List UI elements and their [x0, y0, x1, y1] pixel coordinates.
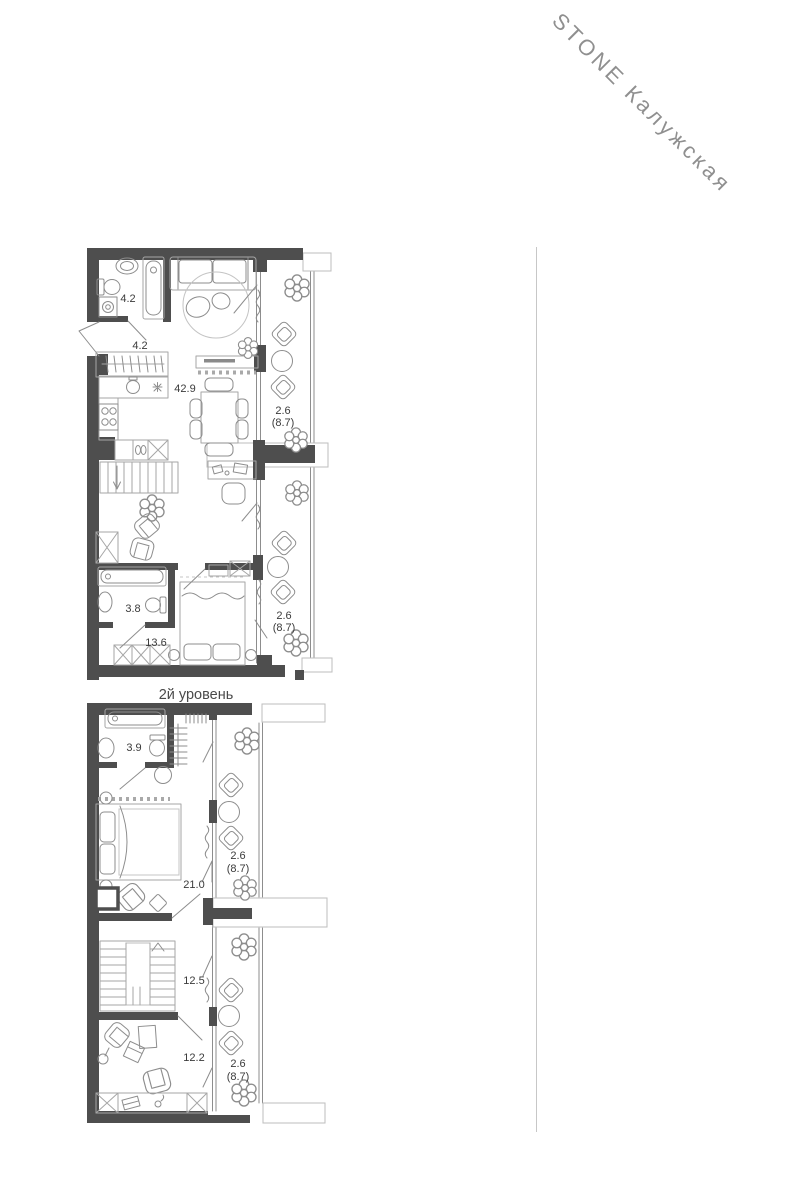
sink-icon	[98, 592, 112, 612]
wardrobe-hangers-icon	[170, 714, 206, 766]
balcony-door-swing	[203, 742, 213, 762]
balcony-chair-icon	[218, 825, 245, 852]
floor-plan-page: STONE Калужская	[0, 0, 791, 1200]
desk-chair-icon	[222, 483, 245, 504]
plant-icon	[285, 275, 309, 301]
balcony-chair-icon	[218, 1030, 245, 1057]
toilet-icon	[150, 735, 166, 756]
area-label-bathroom: 3.9	[126, 742, 141, 754]
easel-chair-icon	[102, 1020, 131, 1050]
lamp-base-icon	[98, 1054, 108, 1064]
balcony-top-slab	[303, 253, 331, 271]
walls-level-2	[87, 703, 252, 1123]
balcony-chair-icon	[270, 579, 297, 606]
toilet-icon	[97, 279, 120, 295]
balcony-table-icon	[272, 351, 293, 372]
sink-icon	[98, 738, 114, 758]
area-label-balcony1-total: (8.7)	[227, 863, 250, 875]
area-label-bedroom: 21.0	[183, 879, 204, 891]
door-swing	[172, 894, 200, 918]
rug-icon	[183, 272, 249, 338]
floor-plan-level-1: 4.2 4.2 42.9 2.6 (8.7) 3.8 13.6 2.6 (8.7…	[79, 248, 332, 680]
curtain-icon	[205, 978, 209, 1002]
curtain-icon	[205, 826, 209, 858]
bathtub-icon	[98, 567, 166, 586]
stairs-icon	[100, 462, 178, 493]
plant-icon	[232, 1080, 256, 1106]
plant-icon	[232, 934, 256, 960]
floor-plan-level-2: 3.9 2.6 (8.7) 21.0 12.5 12.2 2.6 (8.7)	[87, 703, 327, 1123]
bed-icon	[96, 792, 181, 892]
area-label-balcony1: 2.6	[275, 405, 290, 417]
plant-icon	[140, 495, 164, 521]
area-label-balcony2-total: (8.7)	[273, 622, 296, 634]
side-table-icon	[149, 894, 167, 912]
balcony-chair-icon	[271, 530, 298, 557]
area-label-study: 12.2	[183, 1052, 204, 1064]
balcony-top-slab	[262, 704, 325, 722]
plant-icon	[238, 338, 257, 359]
armchair-icon	[129, 536, 155, 561]
balcony-table-icon	[268, 557, 289, 578]
office-chair-icon	[142, 1067, 172, 1096]
balcony-table-icon	[219, 802, 240, 823]
area-label-balcony1-total: (8.7)	[272, 417, 295, 429]
balcony-chair-icon	[271, 321, 298, 348]
balcony-chair-icon	[218, 772, 245, 799]
bed-icon	[169, 582, 257, 665]
entry-door-swing	[79, 322, 99, 356]
area-label-balcony2: 2.6	[276, 610, 291, 622]
bathtub-icon	[105, 709, 165, 728]
closet-icon	[96, 532, 118, 563]
area-label-living: 42.9	[174, 383, 195, 395]
canvas-icon	[138, 1025, 156, 1048]
area-label-bathroom2: 3.8	[125, 603, 140, 615]
area-label-balcony2: 2.6	[230, 1058, 245, 1070]
bathtub-icon	[143, 257, 164, 319]
balcony-bottom-slab	[263, 1103, 325, 1123]
door-swing	[128, 321, 146, 340]
area-label-balcony2-total: (8.7)	[227, 1071, 250, 1083]
area-label-bathroom1: 4.2	[120, 293, 135, 305]
level-2-title: 2й уровень	[159, 687, 234, 703]
balcony-chair-icon	[270, 374, 297, 401]
desk-row-icon	[96, 1093, 207, 1113]
area-label-hall: 12.5	[183, 975, 204, 987]
door-swing	[120, 768, 145, 789]
ottoman-icon	[210, 291, 232, 311]
plan-canvas: 4.2 4.2 42.9 2.6 (8.7) 3.8 13.6 2.6 (8.7…	[0, 0, 791, 1200]
notebook-icon	[123, 1041, 144, 1062]
area-label-bedroom: 13.6	[145, 637, 166, 649]
balcony-bottom-slab	[302, 658, 332, 672]
plant-icon	[234, 876, 256, 900]
door-swing	[184, 569, 205, 589]
area-label-hall: 4.2	[132, 340, 147, 352]
area-label-balcony1: 2.6	[230, 850, 245, 862]
ottoman-icon	[183, 293, 212, 320]
washer-icon	[99, 297, 117, 317]
door-swing	[178, 1016, 202, 1040]
sofa-icon	[170, 257, 256, 290]
toilet-icon	[146, 597, 167, 613]
plant-icon	[286, 481, 308, 505]
shaft-closet	[96, 888, 118, 909]
lamp-stem	[105, 1048, 109, 1056]
plant-icon	[235, 728, 259, 754]
pouf-icon	[155, 767, 172, 784]
balcony-chair-icon	[218, 977, 245, 1004]
sink-icon	[116, 258, 138, 274]
stairs-icon	[100, 941, 175, 1011]
plant-icon	[285, 428, 307, 452]
balcony-table-icon	[219, 1006, 240, 1027]
